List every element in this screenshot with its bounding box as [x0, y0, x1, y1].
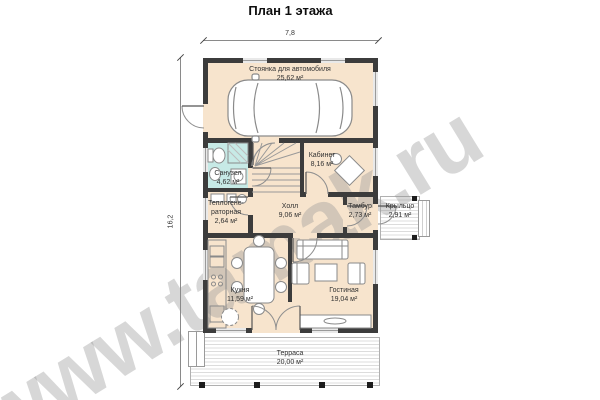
dimension-height-label: 16,2	[167, 215, 174, 229]
floor-plan-canvas: План 1 этажа www.tamak.ru	[0, 0, 600, 400]
dimension-line-top	[203, 40, 378, 41]
office-name: Кабинет	[309, 152, 336, 161]
terrace-name: Терраса	[277, 350, 304, 359]
label-living: Гостиная 19,04 м²	[329, 287, 358, 305]
bathroom-name: Санузел	[214, 170, 241, 179]
vestibule-name: Тамбур	[348, 203, 372, 212]
label-kitchen: Кухня 11,59 м²	[227, 287, 253, 305]
label-office: Кабинет 8,16 м²	[309, 152, 336, 170]
office-area: 8,16 м²	[309, 161, 336, 170]
car-top-view	[228, 74, 352, 142]
garage-name: Стоянка для автомобиля	[249, 66, 331, 75]
plant	[222, 309, 239, 326]
label-terrace: Терраса 20,00 м²	[277, 350, 304, 368]
label-porch: Крыльцо 2,91 м²	[386, 203, 415, 221]
label-vestibule: Тамбур 2,73 м²	[348, 203, 372, 221]
hall-area: 9,06 м²	[279, 212, 302, 221]
living-name: Гостиная	[329, 287, 358, 296]
living-furniture	[292, 240, 371, 328]
garage-area: 25,62 м²	[249, 75, 331, 84]
vestibule-area: 2,73 м²	[348, 212, 372, 221]
label-bathroom: Санузел 4,62 м²	[214, 170, 241, 188]
label-boiler: Теплогене- раторная 2,64 м²	[208, 200, 244, 226]
porch-area: 2,91 м²	[386, 212, 415, 221]
plan-graphics	[0, 0, 600, 400]
page-title: План 1 этажа	[173, 3, 408, 18]
kitchen-area: 11,59 м²	[227, 296, 253, 305]
terrace-area: 20,00 м²	[277, 359, 304, 368]
boiler-area: 2,64 м²	[208, 218, 244, 227]
boiler-name-line2: раторная	[208, 209, 244, 218]
label-hall: Холл 9,06 м²	[279, 203, 302, 221]
dimension-width-label: 7,8	[285, 30, 295, 37]
boiler-name-line1: Теплогене-	[208, 200, 244, 209]
hall-name: Холл	[279, 203, 302, 212]
label-garage: Стоянка для автомобиля 25,62 м²	[249, 66, 331, 84]
living-area: 19,04 м²	[329, 296, 358, 305]
porch-name: Крыльцо	[386, 203, 415, 212]
kitchen-name: Кухня	[227, 287, 253, 296]
bathroom-area: 4,62 м²	[214, 179, 241, 188]
dimension-line-left	[180, 57, 181, 387]
